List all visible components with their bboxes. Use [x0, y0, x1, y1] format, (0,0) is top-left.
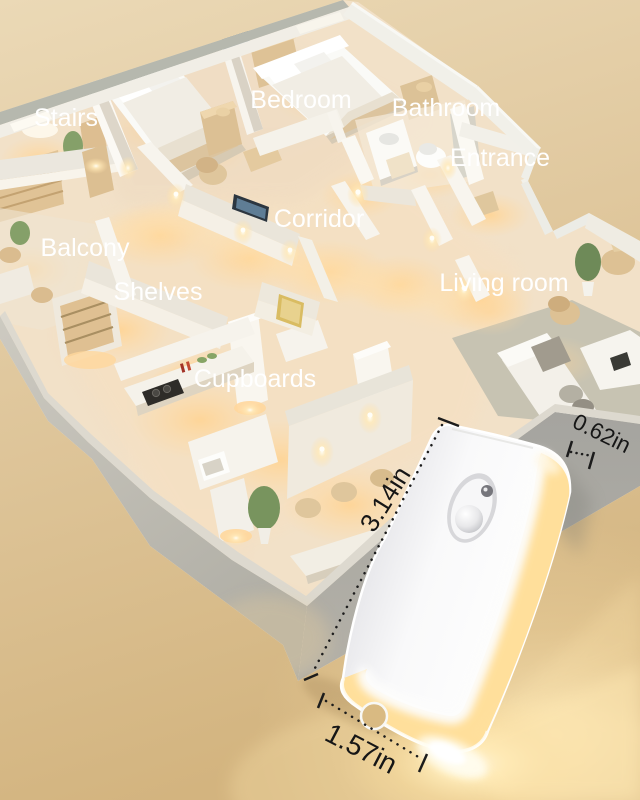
svg-text:Corridor: Corridor — [274, 205, 364, 233]
svg-text:Balcony: Balcony — [41, 234, 130, 262]
svg-text:Living room: Living room — [439, 269, 568, 297]
svg-text:Bathroom: Bathroom — [392, 94, 500, 122]
svg-text:Entrance: Entrance — [450, 144, 550, 172]
svg-text:Stairs: Stairs — [34, 104, 98, 132]
svg-text:Shelves: Shelves — [114, 278, 203, 306]
svg-text:Bedroom: Bedroom — [250, 86, 351, 114]
svg-text:Cupboards: Cupboards — [194, 365, 316, 393]
